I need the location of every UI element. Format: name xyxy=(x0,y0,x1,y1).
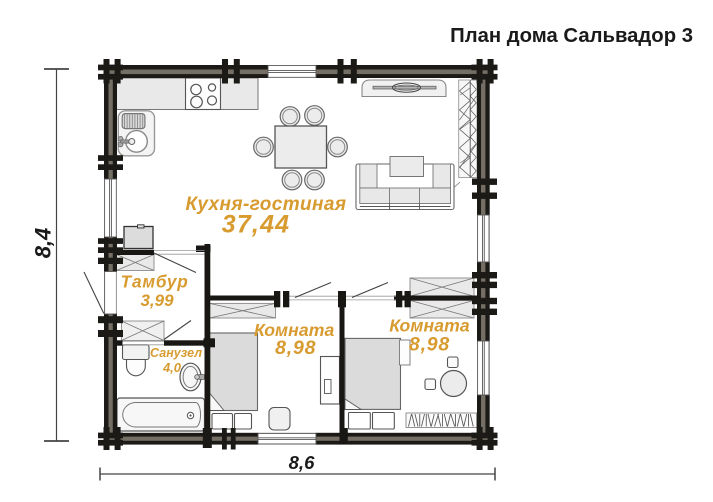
svg-text:3,99: 3,99 xyxy=(140,291,174,310)
svg-text:Комната: Комната xyxy=(389,316,470,336)
svg-text:8,98: 8,98 xyxy=(409,334,450,356)
svg-text:37,44: 37,44 xyxy=(222,211,291,239)
svg-text:Тамбур: Тамбур xyxy=(121,272,189,292)
svg-text:8,98: 8,98 xyxy=(275,337,316,359)
svg-text:8,4: 8,4 xyxy=(31,228,56,259)
svg-text:4,0: 4,0 xyxy=(162,360,182,375)
svg-text:8,6: 8,6 xyxy=(289,452,315,473)
svg-text:Санузел: Санузел xyxy=(150,346,202,360)
svg-text:План дома Сальвадор 3: План дома Сальвадор 3 xyxy=(450,25,693,47)
